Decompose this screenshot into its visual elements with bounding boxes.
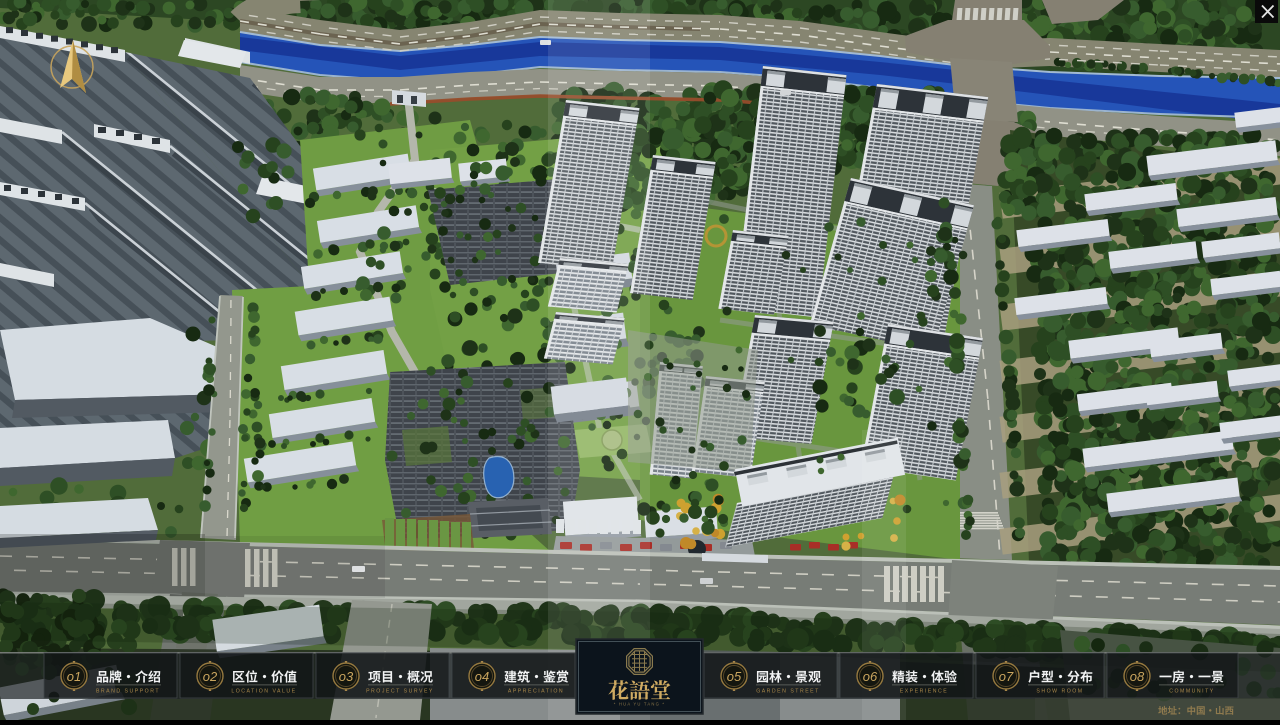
- svg-text:BRAND SUPPORT: BRAND SUPPORT: [96, 689, 160, 695]
- svg-text:LOCATION VALUE: LOCATION VALUE: [231, 689, 296, 695]
- svg-text:SHOW ROOM: SHOW ROOM: [1036, 689, 1083, 695]
- svg-text:o7: o7: [999, 669, 1014, 684]
- svg-text:o5: o5: [727, 669, 742, 684]
- svg-text:o6: o6: [863, 669, 878, 684]
- svg-text:o8: o8: [1130, 669, 1145, 684]
- svg-text:o4: o4: [475, 669, 489, 684]
- svg-text:GARDEN STREET: GARDEN STREET: [756, 689, 820, 695]
- svg-text:* HUA YU TANG *: * HUA YU TANG *: [614, 702, 666, 707]
- svg-text:o2: o2: [203, 669, 218, 684]
- svg-text:APPRECIATION: APPRECIATION: [508, 689, 564, 695]
- svg-text:EXPERIENCE: EXPERIENCE: [900, 689, 948, 695]
- svg-text:o1: o1: [67, 669, 81, 684]
- svg-text:o3: o3: [339, 669, 354, 684]
- svg-text:PROJECT SURVEY: PROJECT SURVEY: [366, 689, 434, 695]
- svg-text:COMMUNITY: COMMUNITY: [1169, 689, 1215, 695]
